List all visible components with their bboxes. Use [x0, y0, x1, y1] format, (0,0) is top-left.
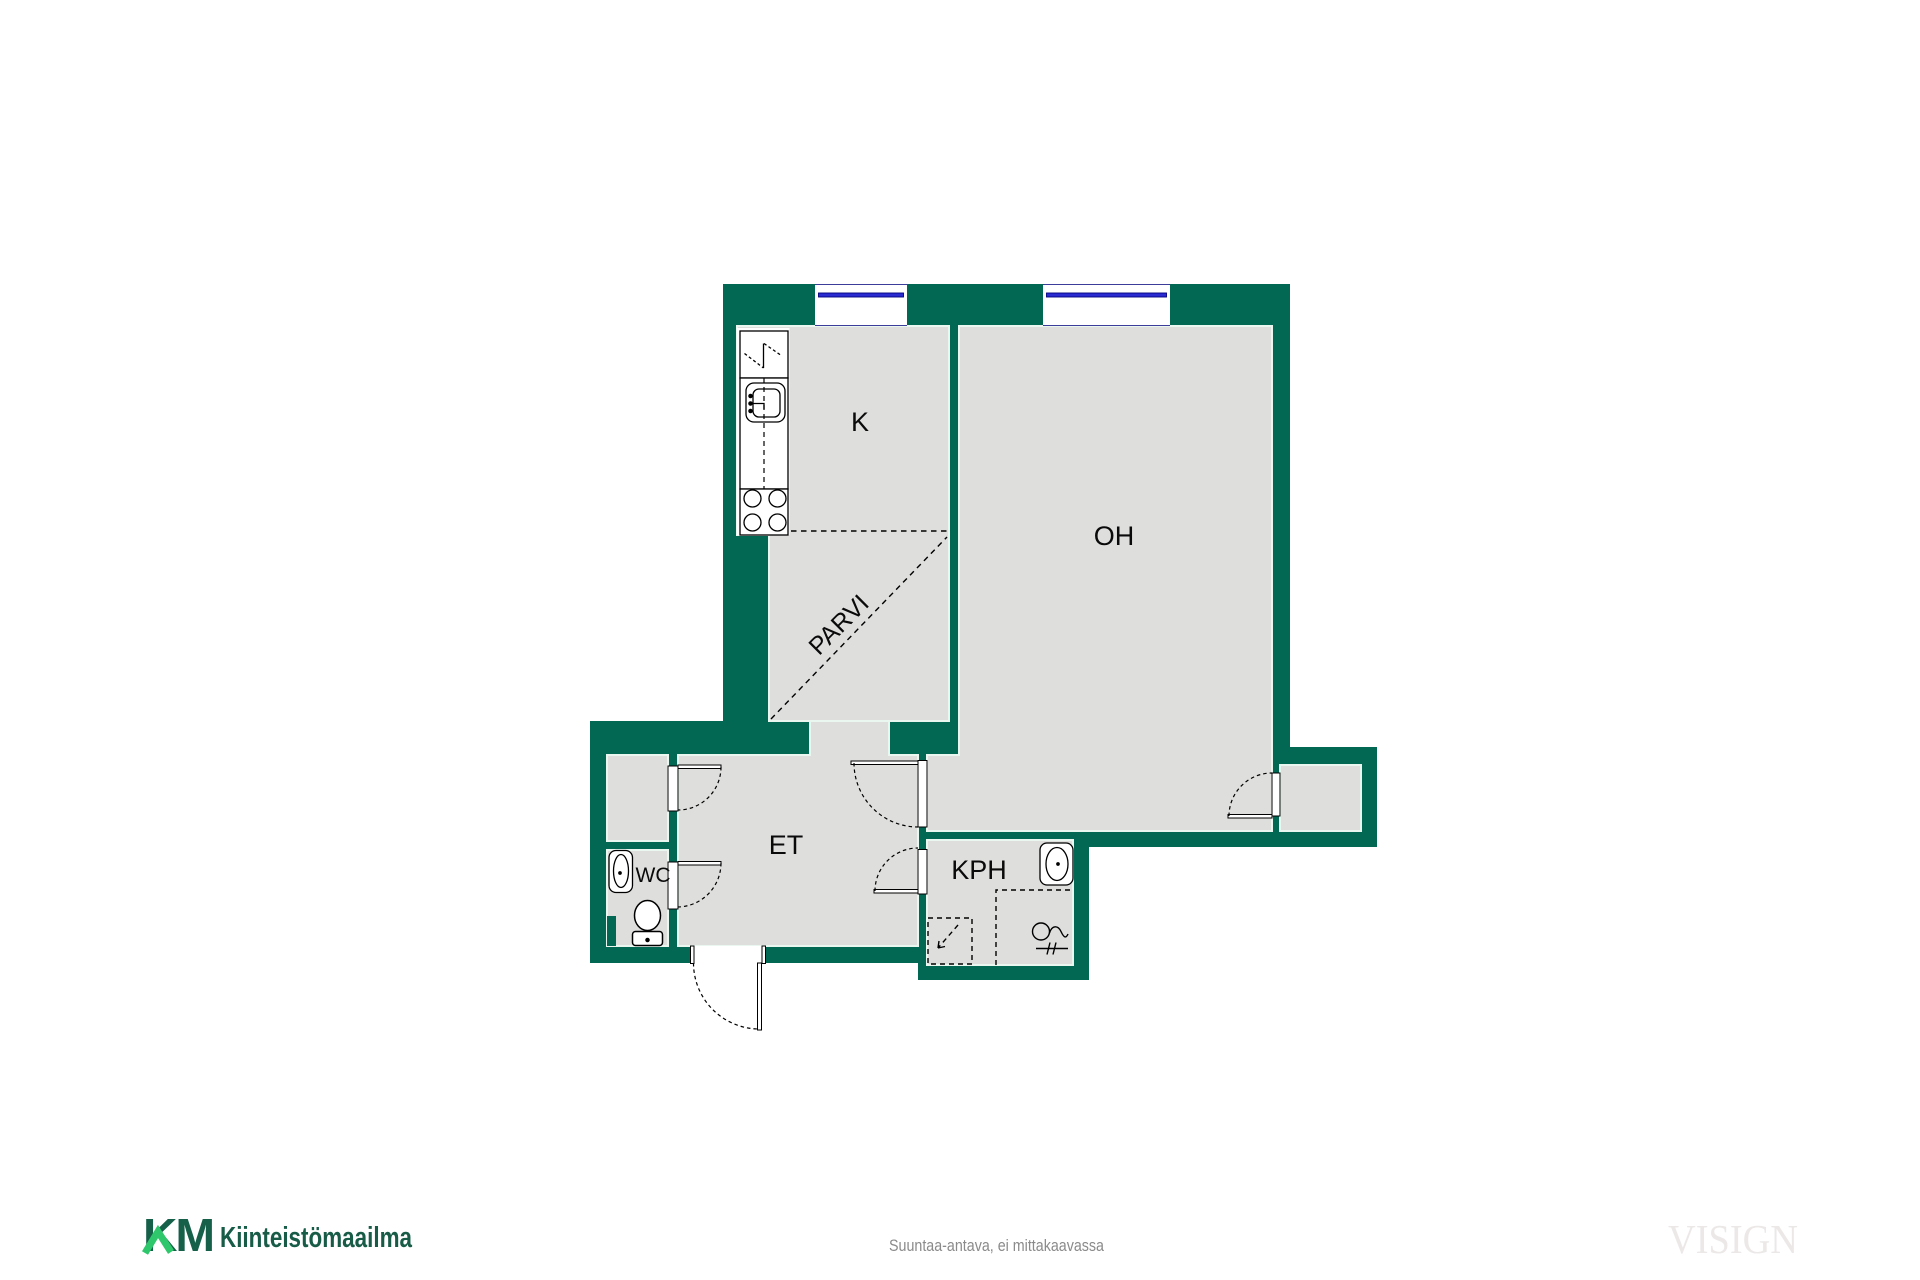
svg-text:VISIGN: VISIGN: [1668, 1216, 1798, 1262]
svg-text:ET: ET: [769, 830, 804, 860]
svg-text:Kiinteistömaailma: Kiinteistömaailma: [220, 1222, 413, 1254]
svg-text:WC: WC: [636, 864, 671, 887]
svg-text:K: K: [851, 407, 869, 437]
svg-text:KPH: KPH: [951, 855, 1007, 885]
svg-text:OH: OH: [1094, 521, 1135, 551]
svg-text:Suuntaa-antava, ei mittakaavas: Suuntaa-antava, ei mittakaavassa: [889, 1236, 1104, 1255]
